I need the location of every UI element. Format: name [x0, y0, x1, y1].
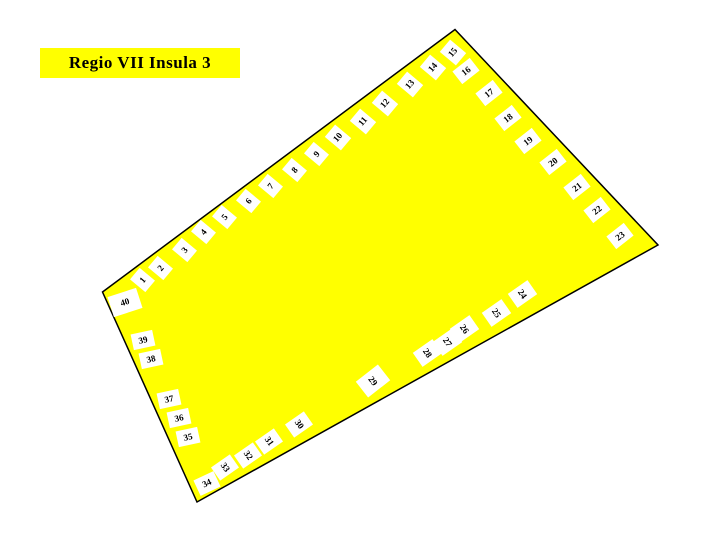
entrance-marker-13[interactable]: 13 [397, 71, 423, 97]
entrance-marker-14[interactable]: 14 [420, 54, 446, 80]
title-box: Regio VII Insula 3 [40, 48, 240, 78]
entrance-marker-22[interactable]: 22 [583, 197, 610, 223]
entrance-marker-6[interactable]: 6 [236, 189, 261, 213]
entrance-marker-20[interactable]: 20 [539, 149, 566, 175]
entrance-marker-11[interactable]: 11 [350, 108, 376, 134]
entrance-marker-29[interactable]: 29 [356, 365, 390, 398]
page-title: Regio VII Insula 3 [69, 53, 211, 73]
entrance-marker-24[interactable]: 24 [507, 280, 536, 308]
entrance-marker-36[interactable]: 36 [167, 408, 192, 428]
entrance-marker-31[interactable]: 31 [255, 428, 283, 454]
entrance-marker-7[interactable]: 7 [258, 174, 283, 198]
insula-map: 1234567891011121314151617181920212223242… [0, 0, 720, 540]
entrance-marker-18[interactable]: 18 [494, 105, 521, 131]
entrance-marker-3[interactable]: 3 [172, 238, 197, 262]
entrance-marker-35[interactable]: 35 [176, 427, 201, 447]
entrance-marker-2[interactable]: 2 [148, 256, 173, 280]
entrance-marker-21[interactable]: 21 [563, 174, 590, 200]
entrance-marker-38[interactable]: 38 [139, 349, 164, 369]
entrance-marker-37[interactable]: 37 [157, 389, 182, 409]
entrance-marker-12[interactable]: 12 [372, 90, 398, 116]
entrance-marker-5[interactable]: 5 [212, 205, 237, 229]
entrance-marker-15[interactable]: 15 [440, 39, 466, 65]
entrance-marker-8[interactable]: 8 [282, 158, 307, 182]
entrance-marker-4[interactable]: 4 [191, 220, 216, 244]
entrance-marker-23[interactable]: 23 [606, 223, 633, 249]
entrance-marker-30[interactable]: 30 [285, 411, 313, 437]
insula-plan-page: 1234567891011121314151617181920212223242… [0, 0, 720, 540]
entrance-marker-25[interactable]: 25 [481, 299, 510, 327]
entrance-marker-19[interactable]: 19 [514, 128, 541, 154]
entrance-marker-17[interactable]: 17 [475, 80, 502, 106]
entrance-marker-9[interactable]: 9 [304, 142, 329, 166]
entrance-marker-10[interactable]: 10 [325, 124, 351, 150]
entrance-marker-39[interactable]: 39 [131, 330, 156, 350]
entrance-marker-40[interactable]: 40 [107, 287, 142, 316]
